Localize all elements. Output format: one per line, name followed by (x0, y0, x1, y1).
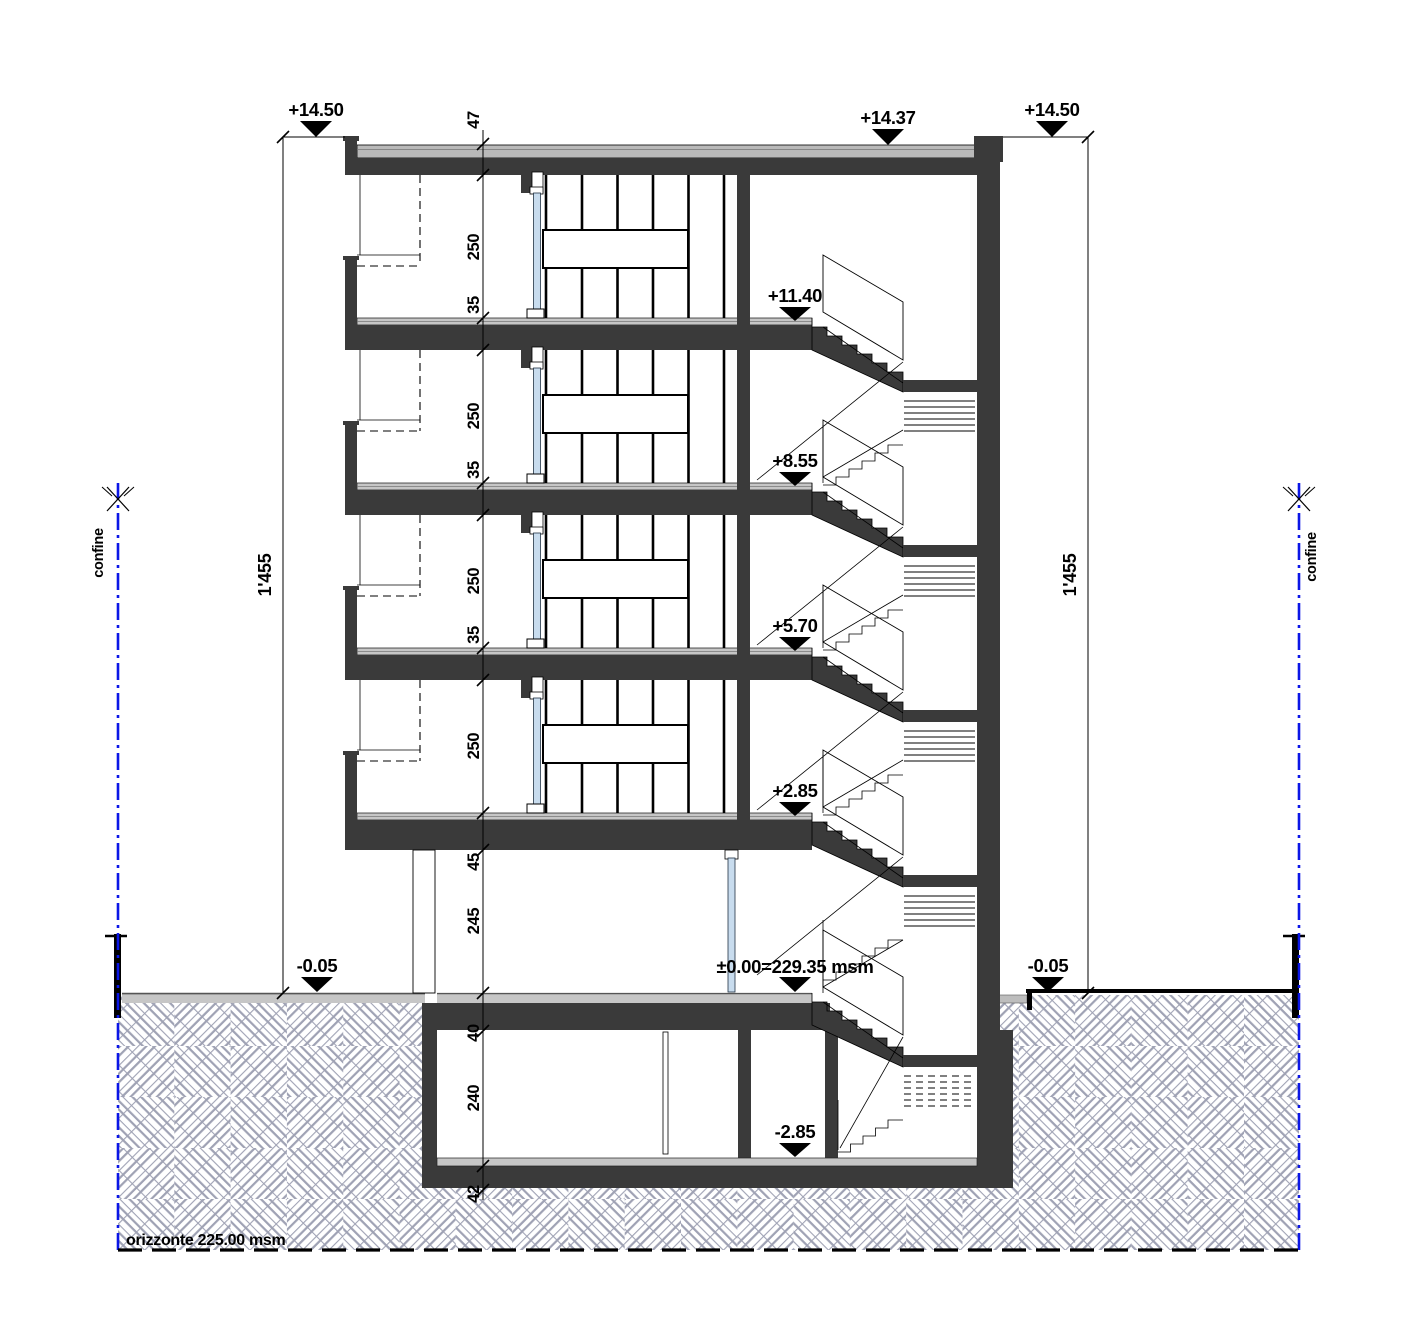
sidewalk-left (122, 993, 425, 1003)
stair-mid-landing (903, 380, 977, 392)
hatch-cell (343, 1148, 399, 1199)
roof-finish (357, 145, 977, 158)
window-glass (534, 368, 541, 474)
dim-label-slab: 35 (465, 626, 483, 644)
dim-label-slab: 42 (465, 1185, 483, 1203)
hatch-cell (1075, 995, 1131, 1046)
dim-label-total-left: 1'455 (255, 553, 275, 596)
garage-door-elevation (663, 1032, 668, 1154)
dim-label-slab: 35 (465, 461, 483, 479)
window-glass (534, 533, 541, 639)
basement-wall-stair (825, 1030, 838, 1166)
hatch-cell (1131, 1097, 1187, 1148)
hatch-cell (963, 1199, 1019, 1250)
window-sill (527, 639, 544, 648)
window-glass (534, 698, 541, 804)
roof-slab (345, 158, 1000, 175)
hatch-cell (231, 1046, 287, 1097)
level-label-ground-left: -0.05 (297, 955, 338, 976)
interior-wall (737, 680, 750, 820)
level-label-roof-right: +14.50 (1024, 99, 1079, 120)
level-label-floor3: +11.40 (768, 285, 822, 306)
ground-hatch (118, 995, 1299, 1250)
balustrade-rail-band (543, 560, 688, 598)
hatch-cell (343, 1046, 399, 1097)
level-label-floor0: +2.85 (772, 780, 817, 801)
stair-mid-landing (903, 875, 977, 887)
hatch-cell (1075, 1148, 1131, 1199)
balustrade-rail-band (543, 230, 688, 268)
hatch-cell (737, 1199, 793, 1250)
roof-parapet-left (345, 137, 357, 175)
window-glass (534, 193, 541, 309)
dim-label-story: 250 (465, 234, 483, 261)
hatch-cell (794, 1199, 850, 1250)
boundary-label-left: confine (91, 528, 107, 578)
hatch-cell (287, 1097, 343, 1148)
hatch-cell (287, 1148, 343, 1199)
hatch-cell (1188, 995, 1244, 1046)
level-marker-triangle (301, 977, 333, 992)
hatch-cell (1244, 995, 1299, 1046)
building-section-drawing: +14.50 +14.50 +14.37 +11.40 +8.55 +5.70 … (0, 0, 1414, 1320)
dim-label-slab: 45 (465, 853, 483, 871)
window-sill (527, 804, 544, 813)
level-label-floor1: +5.70 (772, 615, 817, 636)
dim-label-slab: 35 (465, 296, 483, 314)
level-marker-triangle (1036, 121, 1068, 137)
hatch-cell (1019, 1097, 1075, 1148)
level-label-floor2: +8.55 (772, 450, 817, 471)
dim-label-total-right: 1'455 (1060, 553, 1080, 596)
floor-slab (345, 655, 812, 680)
hatch-cell (1188, 1199, 1244, 1250)
basement-floor-finish (437, 1158, 977, 1166)
level-label-roof-mid: +14.37 (860, 107, 915, 128)
hatch-cell (1244, 1148, 1299, 1199)
hatch-cell (118, 1097, 174, 1148)
level-label-ground-right: -0.05 (1028, 955, 1069, 976)
hatch-cell (1131, 1046, 1187, 1097)
hatch-cell (1244, 1199, 1299, 1250)
hatch-cell (231, 1097, 287, 1148)
level-marker-triangle (300, 121, 332, 137)
hatch-cell (287, 1046, 343, 1097)
dim-label-story: 240 (465, 1085, 483, 1112)
hatch-cell (568, 1199, 624, 1250)
hatch-cell (1131, 995, 1187, 1046)
balcony-parapet-left (345, 588, 357, 680)
basement-wall-mid (738, 1030, 751, 1166)
exterior-wall-right (977, 158, 1000, 1183)
hatch-cell (1075, 1199, 1131, 1250)
floor-slab (345, 325, 812, 350)
level-label-entry-datum: ±0.00=229.35 msm (716, 956, 873, 977)
dim-label-story: 250 (465, 733, 483, 760)
stair-mid-landing (903, 710, 977, 722)
interior-wall (737, 515, 750, 655)
basement-floor-slab (422, 1166, 1013, 1188)
footing-right (1000, 1030, 1013, 1188)
balustrade-rail-band (543, 395, 688, 433)
hatch-cell (625, 1199, 681, 1250)
stair-mid-landing (903, 1055, 977, 1067)
hatch-cell (1075, 1097, 1131, 1148)
interior-wall (737, 350, 750, 490)
hatch-cell (1188, 1046, 1244, 1097)
stair-mid-landing (903, 545, 977, 557)
level-label-basement: -2.85 (775, 1121, 816, 1142)
window-sill (527, 474, 544, 483)
window-sill (527, 309, 544, 318)
ground-stub-right (998, 995, 1027, 1003)
hatch-cell (231, 1148, 287, 1199)
boundary-label-right: confine (1304, 532, 1320, 582)
level-label-roof-left: +14.50 (288, 99, 343, 120)
hatch-cell (1188, 1097, 1244, 1148)
hatch-cell (343, 1199, 399, 1250)
hatch-cell (456, 1199, 512, 1250)
balcony-parapet-left (345, 258, 357, 350)
pilotis-column (413, 850, 435, 993)
hatch-cell (1019, 1046, 1075, 1097)
hatch-cell (118, 1046, 174, 1097)
hatch-cell (343, 1097, 399, 1148)
level-marker-triangle (872, 129, 904, 145)
hatch-cell (1244, 1046, 1299, 1097)
hatch-cell (1019, 1148, 1075, 1199)
hatch-cell (1131, 1199, 1187, 1250)
hatch-cell (118, 1148, 174, 1199)
hatch-cell (850, 1199, 906, 1250)
hatch-cell (1131, 1148, 1187, 1199)
floor-slab (345, 820, 812, 850)
hatch-cell (1244, 1097, 1299, 1148)
ground-line-right (1026, 989, 1297, 993)
hatch-cell (1019, 1199, 1075, 1250)
hatch-cell (512, 1199, 568, 1250)
dim-label-slab: 40 (465, 1024, 483, 1042)
hatch-cell (174, 1046, 230, 1097)
hatch-cell (1188, 1148, 1244, 1199)
dim-label-story: 250 (465, 403, 483, 430)
dim-label-roof-slab: 47 (465, 111, 483, 129)
dim-label-story: 250 (465, 568, 483, 595)
ground-tick-right (1027, 990, 1032, 1010)
interior-wall (737, 175, 750, 325)
dim-label-story: 245 (465, 908, 483, 935)
entry-floor-finish (437, 993, 812, 1003)
hatch-cell (287, 1199, 343, 1250)
balustrade-rail-band (543, 725, 688, 763)
level-marker-triangle (779, 977, 811, 992)
hatch-cell (906, 1199, 962, 1250)
section-drawing-sheet: +14.50 +14.50 +14.37 +11.40 +8.55 +5.70 … (0, 0, 1414, 1320)
hatch-cell (1075, 1046, 1131, 1097)
balcony-parapet-left (345, 423, 357, 515)
datum-line-label: orizzonte 225.00 msm (126, 1232, 285, 1249)
hatch-cell (400, 1199, 456, 1250)
hatch-cell (174, 1148, 230, 1199)
basement-wall-left (422, 1003, 437, 1188)
floor-slab (345, 490, 812, 515)
balcony-parapet-left (345, 753, 357, 845)
hatch-cell (174, 1097, 230, 1148)
hatch-cell (681, 1199, 737, 1250)
